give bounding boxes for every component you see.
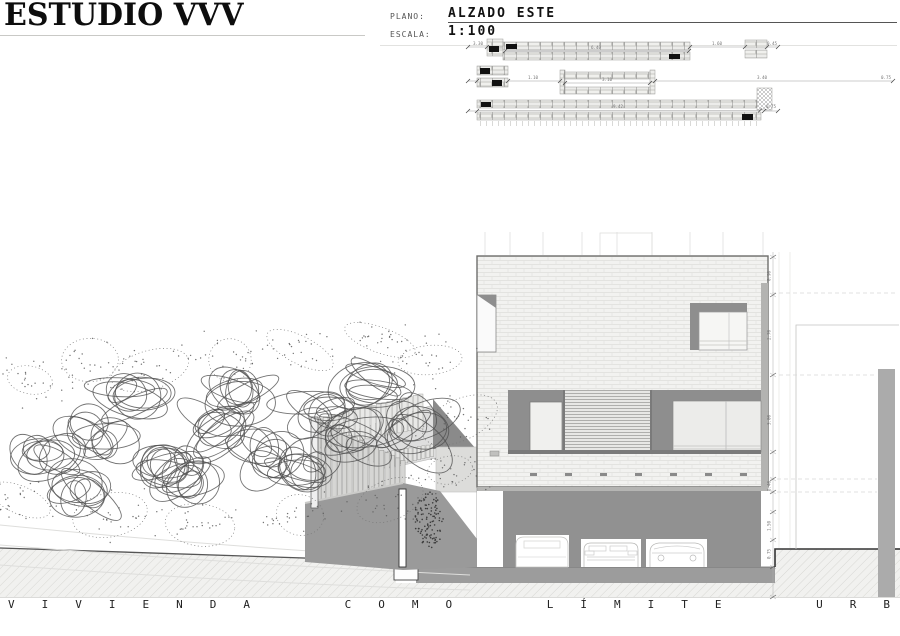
- ground-hatch-strip: [0, 583, 900, 597]
- sidewall-shadow: [433, 399, 476, 449]
- window-mid-left: [530, 402, 562, 452]
- dimension-label: 2.70: [767, 329, 772, 340]
- band-sill: [508, 450, 761, 454]
- dimension-label: 1.60: [712, 41, 723, 46]
- louver-panel: [563, 390, 652, 452]
- drawing-sheet: ESTUDIO VVV PLANO: ALZADO ESTE ESCALA: 1…: [0, 0, 900, 636]
- terrace-slab-panel: [436, 447, 478, 492]
- project-motto: VIVIENDA COMO LÍMITE URBANO: [8, 598, 900, 611]
- house-elevation: 0.90 2.70 3.00 0.40 1.50 0.75: [477, 232, 899, 599]
- key-plan: 3.30 6.40 1.60 0.45 1.10 3.10 3.40 0.75 …: [466, 39, 895, 126]
- ground-far-right: [895, 549, 900, 583]
- ground-floor-recess: [477, 491, 503, 567]
- garage-openings: [516, 535, 707, 567]
- elevation-drawing: 3.30 6.40 1.60 0.45 1.10 3.10 3.40 0.75 …: [0, 0, 900, 636]
- facade-corner-strip: [761, 283, 768, 487]
- dimension-label: 0.45: [767, 41, 778, 46]
- dimension-label: 3.30: [473, 41, 484, 46]
- dimension-label: 0.75: [767, 548, 772, 559]
- dimension-label: 3.10: [602, 77, 613, 82]
- floor-slab-edge: [477, 487, 768, 491]
- boundary-wall-section: [399, 489, 406, 567]
- dimension-label: 0.90: [767, 270, 772, 281]
- window-upper-right: [690, 303, 747, 350]
- construction-lines: [485, 232, 763, 256]
- neighbor-wall-section: [878, 369, 895, 597]
- dimension-label: 3.40: [757, 75, 768, 80]
- dimension-label: 0.40: [767, 480, 772, 491]
- dimension-label: 1.10: [528, 75, 539, 80]
- window-upper-left: [477, 295, 496, 352]
- raised-ground-right: [775, 549, 878, 583]
- dimension-label: 1.50: [767, 520, 772, 531]
- dimension-label: 3.00: [767, 414, 772, 425]
- key-plan-scale-comb: [477, 121, 760, 126]
- dimension-label: 6.40: [591, 45, 602, 50]
- dimension-label: 9.42: [613, 104, 624, 109]
- dimension-label: 0.75: [766, 104, 777, 109]
- facade-vent-small: [490, 451, 499, 456]
- middle-band: [508, 390, 761, 454]
- car-outline-1: [516, 537, 568, 567]
- dimension-label: 0.75: [881, 75, 892, 80]
- window-mid-right: [673, 401, 761, 452]
